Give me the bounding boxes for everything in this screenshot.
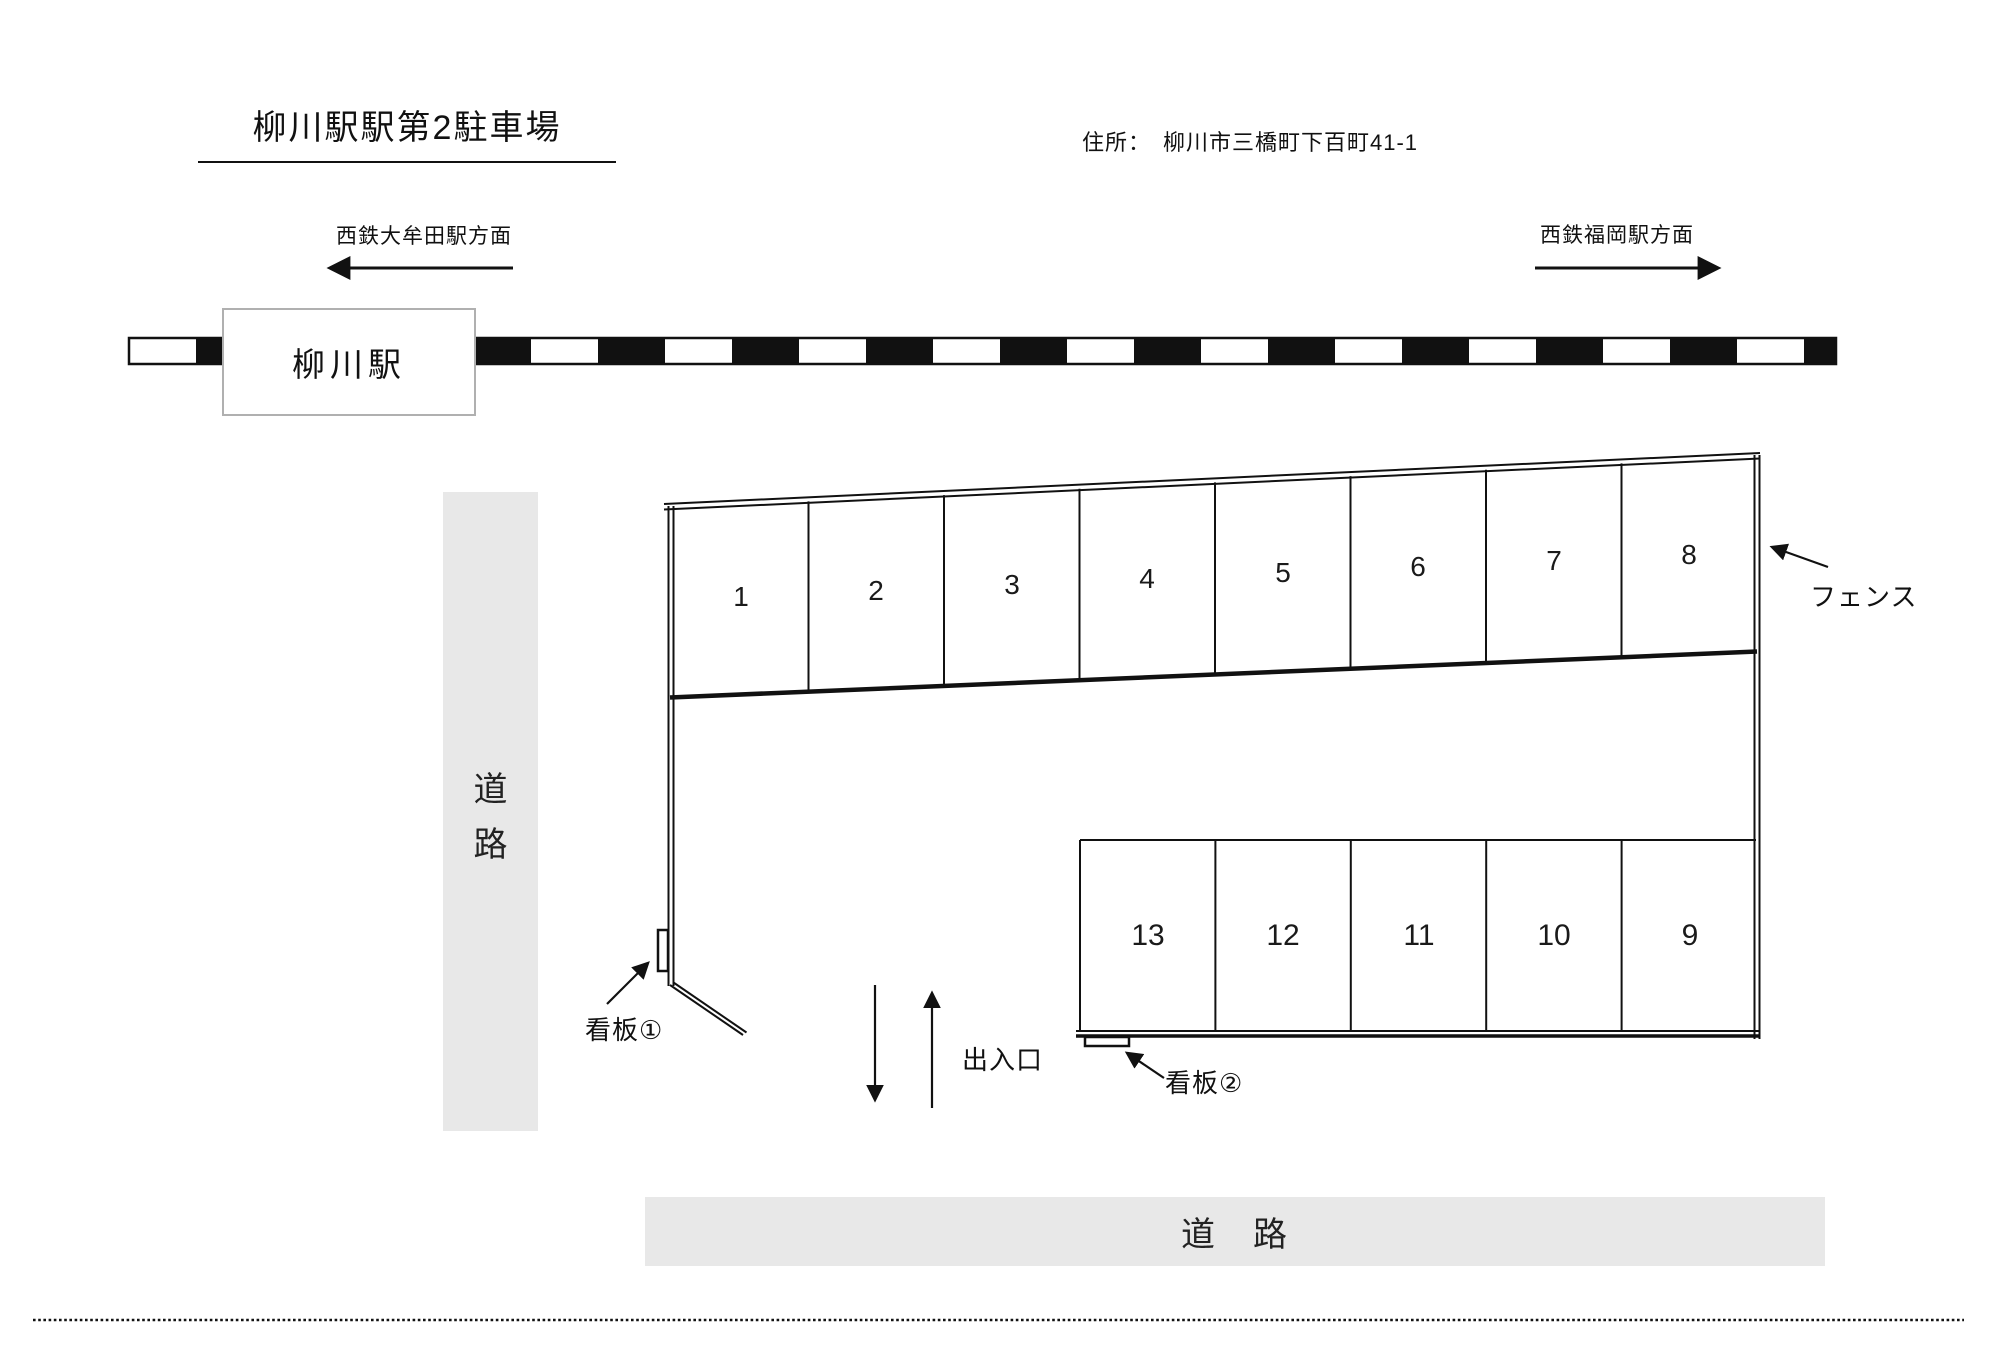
left-road-label-char-2: 路 [443,817,538,866]
fence-arrow [1772,547,1828,567]
page-title: 柳川駅駅第2駐車場 [198,100,616,163]
top-row-lines [670,463,1757,697]
direction-right-label: 西鉄福岡駅方面 [1540,219,1694,249]
fence-top-line [664,453,1760,510]
parking-space-2: 2 [868,575,884,607]
entrance-label: 出入口 [962,1040,1043,1077]
parking-space-7: 7 [1546,545,1562,577]
signboard-1 [658,930,668,971]
signboard-2-label: 看板② [1165,1063,1243,1100]
left-road-label-char-1: 道 [443,762,538,811]
parking-space-9: 9 [1682,919,1699,953]
parking-space-10: 10 [1537,919,1570,953]
fence-label: フェンス [1810,577,1917,614]
address-text: 住所： 柳川市三橋町下百町41-1 [1082,125,1418,157]
parking-space-6: 6 [1410,551,1426,583]
signboard-2-arrow [1127,1053,1164,1078]
entrance-diagonal-line [670,983,747,1036]
station-box: 柳川駅 [222,308,476,416]
lot-left-edge [669,506,674,986]
signboard-1-arrow [607,963,648,1004]
parking-space-3: 3 [1004,569,1020,601]
parking-space-1: 1 [733,581,749,613]
signboard-2 [1085,1037,1129,1046]
parking-space-5: 5 [1275,557,1291,589]
diagram-linework [0,0,1997,1371]
parking-space-4: 4 [1139,563,1155,595]
parking-space-12: 12 [1266,919,1299,953]
direction-left-label: 西鉄大牟田駅方面 [336,220,512,250]
signboard-1-label: 看板① [585,1010,663,1047]
parking-map-page: 道 路 [0,0,1997,1371]
station-name: 柳川駅 [292,338,406,386]
parking-space-13: 13 [1131,919,1164,953]
parking-space-8: 8 [1681,539,1697,571]
lot-right-edge [1755,455,1760,1039]
parking-space-11: 11 [1403,919,1434,953]
